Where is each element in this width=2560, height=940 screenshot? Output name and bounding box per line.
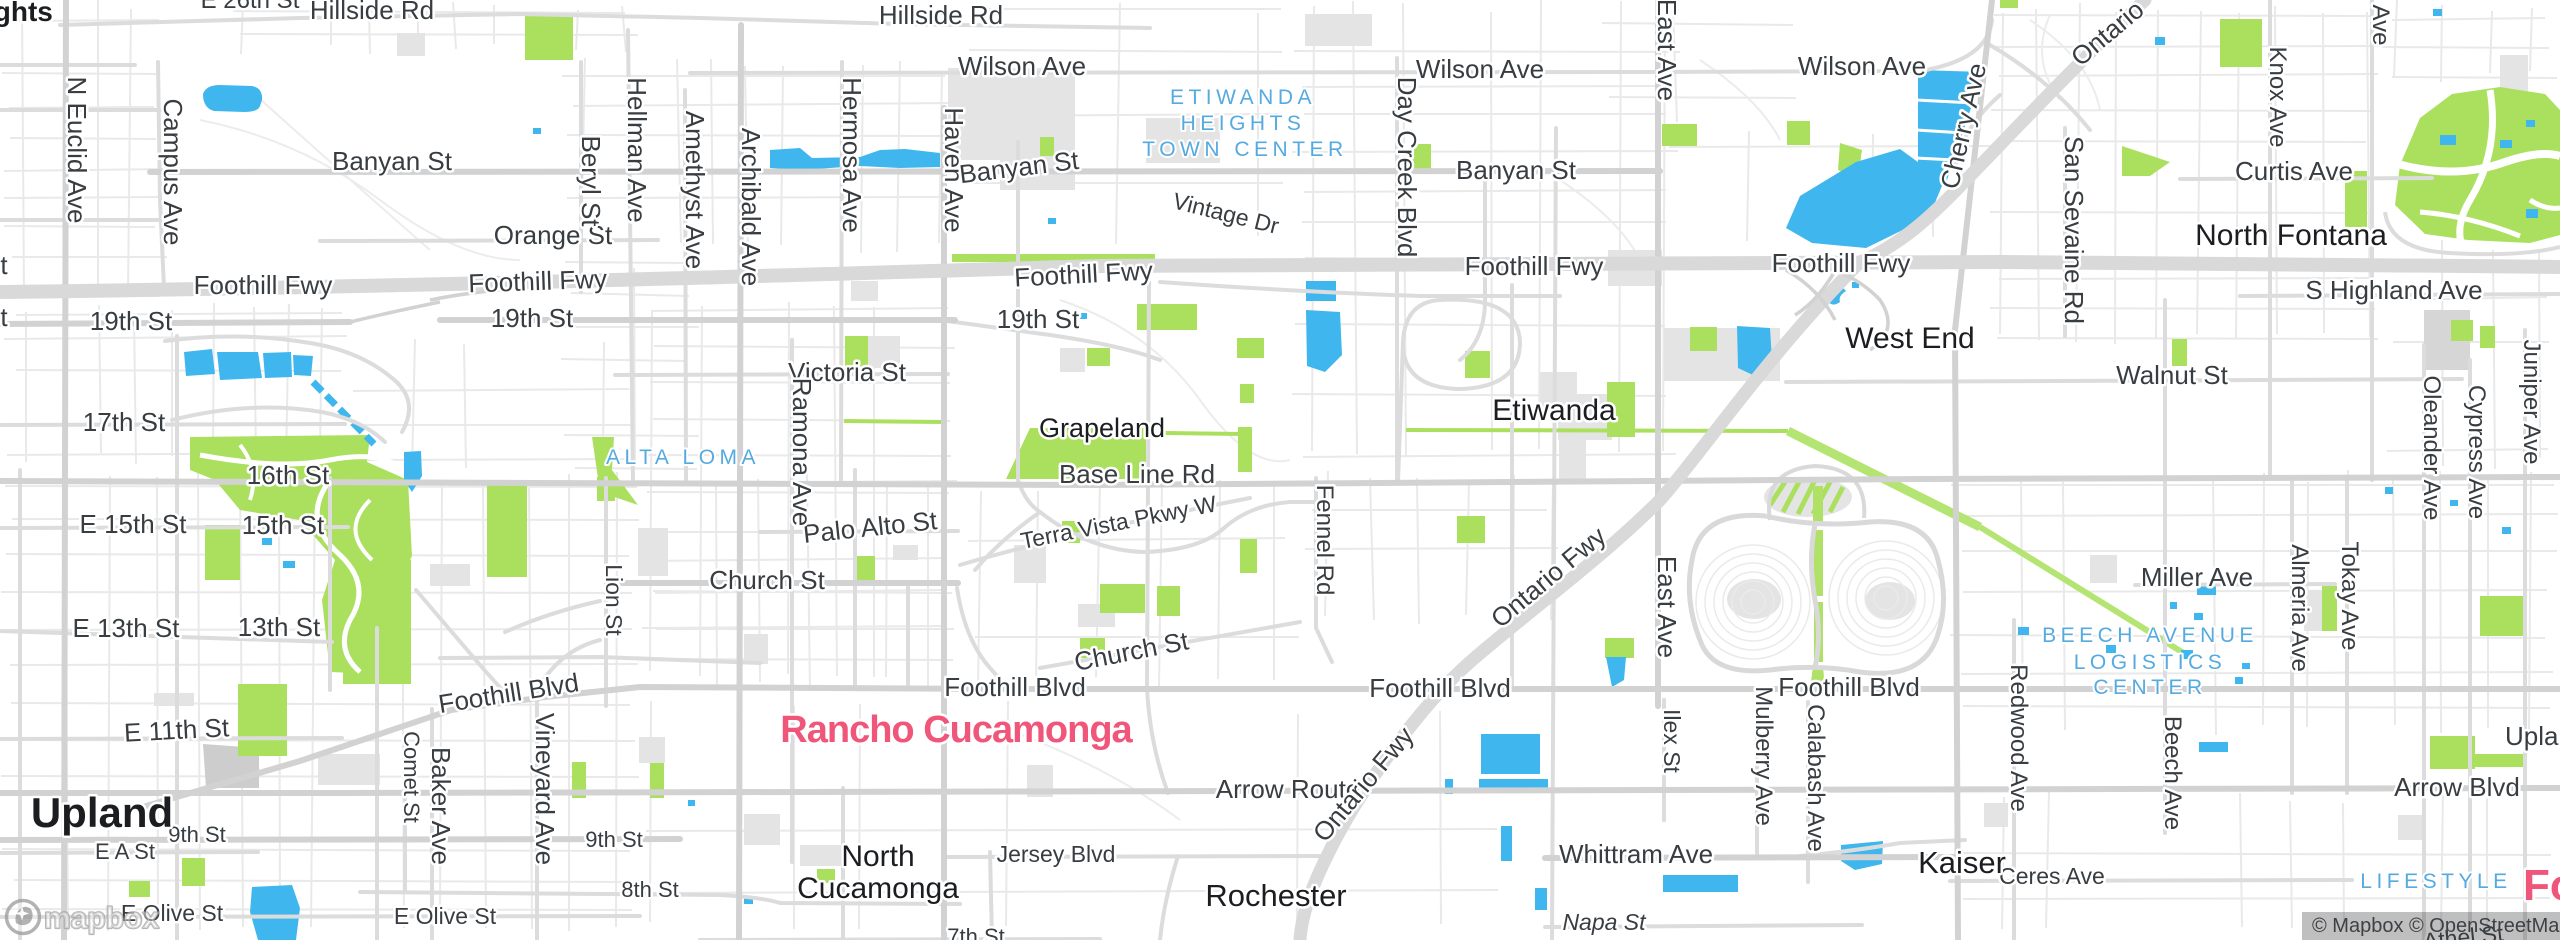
svg-text:North Fontana: North Fontana (2195, 219, 2387, 252)
svg-text:S Highland Ave: S Highland Ave (2305, 275, 2482, 305)
svg-text:Wilson Ave: Wilson Ave (958, 51, 1086, 81)
svg-text:Lion St: Lion St (601, 564, 627, 636)
svg-text:8th St: 8th St (621, 877, 678, 902)
svg-text:mapbox: mapbox (44, 902, 159, 935)
svg-text:Redwood Ave: Redwood Ave (2005, 664, 2032, 812)
svg-text:Vineyard Ave: Vineyard Ave (530, 713, 560, 865)
svg-text:Foothill Blvd: Foothill Blvd (1778, 672, 1920, 702)
svg-text:LIFESTYLE: LIFESTYLE (2360, 870, 2511, 893)
svg-text:Baker Ave: Baker Ave (426, 747, 456, 865)
svg-text:Banyan St: Banyan St (332, 146, 453, 176)
svg-text:Banyan St: Banyan St (1456, 155, 1577, 185)
svg-text:E Olive St: E Olive St (394, 903, 497, 929)
svg-text:Fo: Fo (2523, 861, 2560, 910)
svg-text:E A St: E A St (95, 839, 155, 864)
svg-text:Foothill Blvd: Foothill Blvd (1369, 673, 1511, 703)
svg-text:7th St: 7th St (947, 924, 1004, 940)
svg-text:19th St: 19th St (491, 303, 574, 333)
svg-text:Almeria Ave: Almeria Ave (2286, 544, 2313, 672)
svg-text:15th St: 15th St (242, 510, 325, 540)
svg-text:Juniper Ave: Juniper Ave (2518, 340, 2545, 465)
svg-text:Cypress Ave: Cypress Ave (2463, 385, 2490, 519)
svg-text:Beryl St: Beryl St (576, 135, 606, 227)
svg-text:Foothill Blvd: Foothill Blvd (944, 672, 1086, 702)
svg-text:Tokay Ave: Tokay Ave (2336, 542, 2363, 651)
svg-text:Rochester: Rochester (1205, 878, 1346, 913)
svg-text:TOWN CENTER: TOWN CENTER (1142, 138, 1347, 161)
svg-text:19th St: 19th St (90, 306, 173, 336)
svg-text:BEECH AVENUE: BEECH AVENUE (2042, 624, 2258, 647)
svg-text:Oleander Ave: Oleander Ave (2418, 376, 2445, 521)
svg-text:CENTER: CENTER (2093, 676, 2206, 699)
svg-text:East Ave: East Ave (1652, 0, 1682, 101)
svg-text:Beech Ave: Beech Ave (2159, 716, 2186, 830)
svg-text:Arrow Blvd: Arrow Blvd (2394, 772, 2520, 802)
svg-text:Foothill Fwy: Foothill Fwy (194, 270, 333, 300)
svg-text:Cucamonga: Cucamonga (797, 872, 959, 905)
svg-text:Comet St: Comet St (399, 731, 424, 823)
svg-text:Fennel Rd: Fennel Rd (1311, 485, 1338, 596)
svg-text:Curtis Ave: Curtis Ave (2235, 156, 2353, 186)
svg-text:Day Creek Blvd: Day Creek Blvd (1392, 77, 1422, 258)
svg-text:West End: West End (1845, 322, 1975, 355)
svg-text:17th St: 17th St (83, 407, 166, 437)
svg-text:Etiwanda: Etiwanda (1492, 394, 1616, 427)
svg-text:Rancho Cucamonga: Rancho Cucamonga (780, 709, 1133, 751)
svg-text:Wilson Ave: Wilson Ave (1416, 54, 1544, 84)
svg-text:Kaiser: Kaiser (1918, 845, 2006, 880)
svg-text:© Mapbox © OpenStreetMap: © Mapbox © OpenStreetMap (2312, 915, 2560, 937)
svg-text:13th St: 13th St (238, 612, 321, 642)
svg-text:Ave: Ave (2367, 5, 2394, 46)
svg-text:N Euclid Ave: N Euclid Ave (62, 77, 92, 224)
svg-text:9th St: 9th St (585, 827, 642, 852)
svg-text:E 26th St: E 26th St (201, 0, 300, 14)
svg-text:Whittram Ave: Whittram Ave (1559, 839, 1713, 869)
svg-text:North: North (841, 840, 914, 873)
svg-text:ALTA LOMA: ALTA LOMA (606, 446, 760, 469)
svg-text:19th St: 19th St (997, 304, 1080, 334)
svg-text:Archibald Ave: Archibald Ave (736, 128, 766, 287)
svg-text:Campus Ave: Campus Ave (158, 99, 188, 246)
svg-text:Upland: Upland (31, 789, 173, 836)
svg-text:16th St: 16th St (247, 460, 330, 490)
svg-text:San Sevaine Rd: San Sevaine Rd (2059, 136, 2089, 324)
svg-text:Hillside Rd: Hillside Rd (879, 0, 1003, 30)
svg-text:Foothill Fwy: Foothill Fwy (1465, 251, 1604, 281)
svg-text:E 13th St: E 13th St (73, 613, 181, 643)
svg-text:E 15th St: E 15th St (80, 509, 188, 539)
svg-text:Upland: Upland (2505, 721, 2560, 751)
svg-text:Base Line Rd: Base Line Rd (1059, 459, 1215, 489)
svg-text:Hillside Rd: Hillside Rd (310, 0, 434, 25)
svg-text:Hermosa Ave: Hermosa Ave (837, 77, 867, 233)
svg-text:LOGISTICS: LOGISTICS (2074, 651, 2227, 674)
svg-text:Haven Ave: Haven Ave (939, 107, 969, 232)
svg-text:9th St: 9th St (168, 822, 225, 847)
svg-text:Miller Ave: Miller Ave (2141, 562, 2253, 592)
svg-text:HEIGHTS: HEIGHTS (1181, 112, 1306, 135)
svg-text:t: t (0, 302, 8, 332)
svg-text:Hellman Ave: Hellman Ave (622, 77, 652, 223)
svg-text:E 11th St: E 11th St (123, 712, 230, 747)
svg-text:East Ave: East Ave (1652, 556, 1682, 658)
svg-text:Church St: Church St (709, 565, 825, 595)
svg-text:ights: ights (0, 0, 53, 27)
svg-text:t: t (0, 250, 8, 280)
svg-text:Mulberry Ave: Mulberry Ave (1750, 686, 1777, 826)
svg-text:Foothill Fwy: Foothill Fwy (1772, 248, 1911, 278)
svg-text:Knox Ave: Knox Ave (2264, 47, 2291, 148)
svg-text:ETIWANDA: ETIWANDA (1170, 86, 1316, 109)
svg-text:Foothill Fwy: Foothill Fwy (468, 264, 608, 299)
svg-text:Napa St: Napa St (1562, 909, 1647, 935)
svg-text:Amethyst Ave: Amethyst Ave (680, 111, 710, 270)
svg-text:Wilson Ave: Wilson Ave (1798, 51, 1926, 81)
svg-text:Calabash Ave: Calabash Ave (1802, 704, 1829, 852)
svg-text:Ilex St: Ilex St (1659, 709, 1685, 774)
svg-text:Ceres Ave: Ceres Ave (1999, 863, 2105, 889)
svg-text:Ramona Ave: Ramona Ave (787, 378, 817, 526)
svg-text:Jersey Blvd: Jersey Blvd (997, 841, 1116, 867)
svg-text:Grapeland: Grapeland (1039, 413, 1165, 443)
svg-text:Walnut St: Walnut St (2116, 360, 2229, 390)
